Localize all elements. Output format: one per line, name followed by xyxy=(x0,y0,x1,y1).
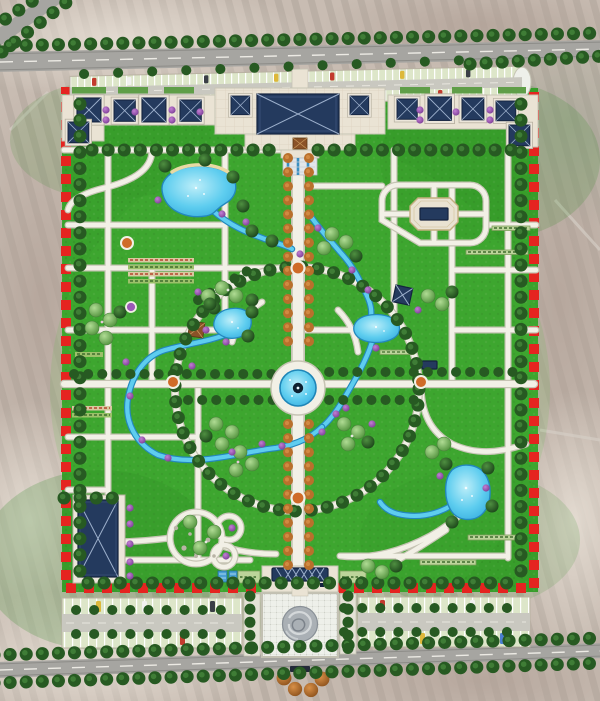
pavilion-navy xyxy=(392,285,412,305)
octagon-court xyxy=(410,198,458,230)
central-fountain xyxy=(271,361,325,415)
pond-southeast xyxy=(446,465,491,519)
parking-lot-southwest xyxy=(62,598,242,648)
stone-medallion xyxy=(283,607,318,642)
masterplan-rendering xyxy=(0,0,600,701)
